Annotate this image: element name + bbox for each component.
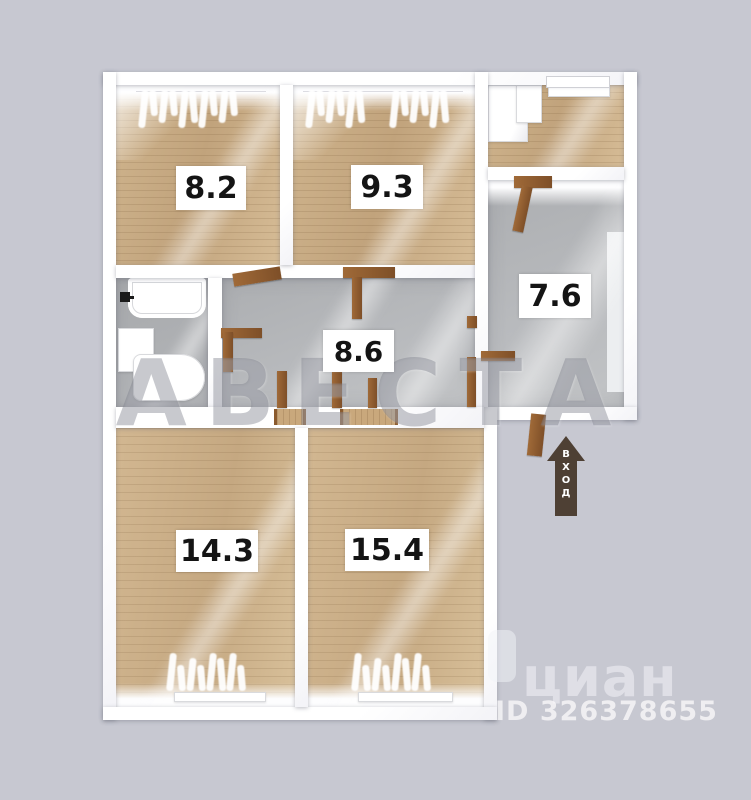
listing-id-watermark: ID 326378655	[495, 696, 718, 727]
door-lintel-hall-to-entry	[481, 351, 515, 361]
area-label-room-9-3: 9.3	[351, 165, 423, 209]
door-leaf-room-9-3	[352, 277, 362, 319]
corridor-window	[546, 76, 610, 88]
entrance-arrow-icon: ВХОД	[546, 436, 586, 516]
entry-corridor-floor	[488, 85, 624, 167]
arrow-shaft: ВХОД	[555, 461, 577, 516]
wall-between-bottom-rooms	[295, 428, 308, 707]
curtains	[168, 653, 245, 691]
entrance-door-leaf	[527, 413, 546, 456]
door-jamb-hall	[467, 357, 476, 407]
curtains	[353, 653, 430, 691]
bathtub	[128, 278, 206, 318]
floor-plan-canvas: 8.2 9.3 7.6 8.6 14.3 15.4 ВХОД АВЕСТА ци…	[0, 0, 751, 800]
area-label-hallway: 8.6	[323, 330, 394, 372]
toilet	[133, 354, 205, 401]
wall-between-top-rooms	[280, 85, 293, 265]
door-leaf-room-14-3	[277, 371, 287, 408]
door-lintel-room-7-6	[514, 176, 552, 188]
curtains	[391, 90, 448, 128]
wall-interior-horizontal-mid	[116, 265, 475, 278]
curtains	[140, 90, 237, 128]
window-sill	[174, 692, 266, 702]
threshold-room-14-3	[274, 409, 306, 425]
area-label-room-14-3: 14.3	[176, 530, 258, 572]
door-leaf-room-15-4	[332, 371, 342, 408]
wall-exterior-right-lower	[484, 407, 497, 720]
window-sill	[358, 692, 453, 702]
wall-exterior-entry	[475, 407, 637, 420]
entrance-label: ВХОД	[561, 449, 572, 516]
area-label-room-7-6: 7.6	[519, 274, 591, 318]
wall-exterior-bottom	[103, 707, 497, 720]
wall-bathroom-hall	[208, 278, 222, 407]
door-jamb-room-15-4	[368, 378, 377, 408]
area-label-room-15-4: 15.4	[345, 529, 429, 571]
portal-watermark: циан	[522, 646, 678, 709]
faucet-icon	[128, 296, 134, 299]
wall-corridor-room76	[488, 167, 624, 180]
door-leaf-bathroom	[223, 332, 233, 372]
bathroom-floor	[116, 278, 208, 407]
door-hinge-mark	[467, 316, 477, 328]
curtains	[307, 90, 364, 128]
wall-exterior-left	[103, 72, 116, 720]
area-label-room-8-2: 8.2	[176, 166, 246, 210]
vent-shaft	[516, 85, 542, 123]
wall-exterior-right	[624, 72, 637, 420]
threshold-room-15-4	[340, 409, 398, 425]
door-lintel-room-9-3	[343, 267, 395, 278]
